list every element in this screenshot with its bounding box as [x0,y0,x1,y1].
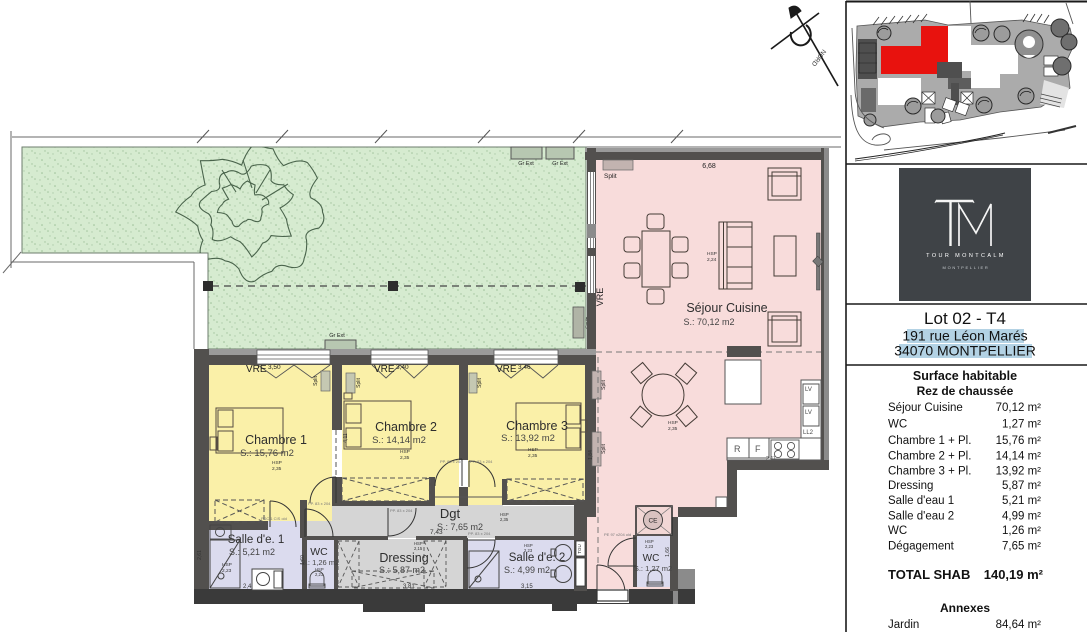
svg-text:LV: LV [805,387,812,393]
svg-text:S.: 70,12 m2: S.: 70,12 m2 [683,317,734,327]
svg-text:34070 MONTPELLIER: 34070 MONTPELLIER [894,343,1036,359]
svg-text:S.: 4,99 m2: S.: 4,99 m2 [504,565,550,575]
svg-text:7,43: 7,43 [430,529,443,536]
svg-text:S.: 1,26 m2: S.: 1,26 m2 [301,558,339,567]
svg-text:Surface habitable: Surface habitable [913,369,1017,383]
svg-text:2,35: 2,35 [272,466,282,472]
svg-text:Chambre 3 + Pl.: Chambre 3 + Pl. [888,466,971,478]
svg-text:Chambre 2 + Pl.: Chambre 2 + Pl. [888,451,971,463]
svg-text:191 rue Léon Marés: 191 rue Léon Marés [902,328,1027,344]
svg-text:70,12 m²: 70,12 m² [996,402,1042,414]
svg-text:Rez de chaussée: Rez de chaussée [917,384,1014,398]
svg-text:Split: Split [604,173,617,180]
svg-text:PP. 83 x 204: PP. 83 x 204 [440,459,463,464]
svg-text:3,50: 3,50 [268,364,281,371]
svg-text:LL2: LL2 [803,430,814,436]
svg-text:Dégagement: Dégagement [888,541,955,553]
svg-text:VRE: VRE [246,364,267,375]
svg-text:4,99 m²: 4,99 m² [1002,511,1041,523]
svg-text:2,23: 2,23 [222,568,232,574]
svg-text:HSP: HSP [400,449,410,455]
svg-text:Chambre 1: Chambre 1 [245,433,307,447]
svg-text:13,92 m²: 13,92 m² [996,466,1042,478]
svg-text:2,35: 2,35 [500,517,509,522]
svg-text:2,23: 2,23 [524,548,533,553]
svg-text:CE: CE [648,518,658,525]
svg-text:HSP: HSP [272,460,282,466]
svg-text:15,76 m²: 15,76 m² [996,435,1042,447]
svg-text:Annexes: Annexes [940,601,990,615]
svg-text:Séjour Cuisine: Séjour Cuisine [686,301,767,315]
svg-text:2,35: 2,35 [668,426,678,432]
svg-text:LV: LV [805,410,812,416]
svg-text:14,14 m²: 14,14 m² [996,451,1042,463]
svg-text:PP. 83 x 204: PP. 83 x 204 [390,508,413,513]
svg-text:Salle d'e. 2: Salle d'e. 2 [509,552,566,564]
svg-text:S.: 14,14 m2: S.: 14,14 m2 [372,435,426,446]
svg-text:Chambre 2: Chambre 2 [375,420,437,434]
svg-text:4,11: 4,11 [343,433,349,443]
svg-text:Chambre 3: Chambre 3 [506,419,568,433]
svg-text:S.: 15,76 m2: S.: 15,76 m2 [240,448,294,459]
svg-text:Gr Ext: Gr Ext [552,161,568,167]
svg-text:5,21 m²: 5,21 m² [1002,495,1041,507]
svg-text:PP. 83 x 204: PP. 83 x 204 [308,501,331,506]
svg-text:Split: Split [313,376,319,386]
svg-text:PP. 83 x 204: PP. 83 x 204 [470,459,493,464]
svg-text:2,41: 2,41 [766,456,776,462]
svg-text:WC: WC [888,419,907,431]
svg-text:Gr Ext: Gr Ext [518,161,534,167]
svg-text:1,66: 1,66 [665,547,671,557]
svg-text:TOUR MONTCALM: TOUR MONTCALM [926,253,1006,259]
svg-text:Salle d'eau 1: Salle d'eau 1 [888,495,954,507]
svg-text:Jardin: Jardin [888,619,919,631]
svg-text:1,60: 1,60 [300,555,306,565]
svg-text:Séjour Cuisine: Séjour Cuisine [888,402,963,414]
svg-text:WC: WC [643,553,660,564]
svg-text:2,35: 2,35 [400,455,410,461]
svg-text:VRE: VRE [595,288,605,307]
svg-text:S.: 5,21 m2: S.: 5,21 m2 [229,547,275,557]
svg-text:S.: 1,27 m2: S.: 1,27 m2 [634,564,672,573]
svg-text:2,15: 2,15 [414,546,423,551]
svg-text:WC: WC [888,525,907,537]
svg-text:Salle d'eau 2: Salle d'eau 2 [888,511,954,523]
svg-text:Split: Split [477,378,483,388]
svg-text:R: R [734,444,741,454]
svg-text:VRE: VRE [496,364,517,375]
svg-text:TOTAL SHAB: TOTAL SHAB [888,567,970,582]
svg-text:Dressing: Dressing [379,551,428,565]
svg-text:HSP: HSP [668,420,678,426]
svg-text:84,64 m²: 84,64 m² [996,619,1042,631]
svg-text:WC: WC [310,546,328,558]
svg-text:F: F [755,444,761,454]
svg-text:Lot 02 - T4: Lot 02 - T4 [924,309,1006,328]
svg-text:HSP: HSP [707,251,717,257]
svg-text:VRE: VRE [374,364,395,375]
svg-text:1,84: 1,84 [588,450,594,460]
svg-text:140,19 m²: 140,19 m² [984,567,1044,582]
svg-text:2,61: 2,61 [197,550,203,560]
svg-text:Split: Split [601,444,607,454]
svg-text:Dressing: Dressing [888,480,933,492]
svg-text:HSP: HSP [528,447,538,453]
svg-text:2,35: 2,35 [528,453,538,459]
svg-text:5,87 m²: 5,87 m² [1002,480,1041,492]
svg-text:2,24: 2,24 [707,257,717,263]
svg-text:3,15: 3,15 [521,584,533,590]
svg-text:MONTPELLIER: MONTPELLIER [943,265,990,270]
svg-text:S.: 5,87 m2: S.: 5,87 m2 [379,565,425,575]
svg-text:6,68: 6,68 [702,163,716,170]
svg-text:2,23: 2,23 [315,572,324,577]
svg-text:3,40: 3,40 [396,364,409,371]
svg-text:2,23: 2,23 [645,544,654,549]
svg-text:7,65 m²: 7,65 m² [1002,541,1041,553]
svg-text:3,81: 3,81 [403,584,415,590]
svg-text:Split: Split [356,378,362,388]
svg-text:Chambre 1 + Pl.: Chambre 1 + Pl. [888,435,971,447]
svg-text:3,46: 3,46 [518,364,531,371]
svg-text:PE 97 x204 old: PE 97 x204 old [604,532,631,537]
svg-text:1,26 m²: 1,26 m² [1002,525,1041,537]
svg-text:S.: 13,92 m2: S.: 13,92 m2 [501,433,555,444]
svg-text:PSC 1 CIS old: PSC 1 CIS old [261,516,287,521]
svg-text:Split: Split [601,380,607,390]
svg-text:1,27 m²: 1,27 m² [1002,419,1041,431]
svg-text:TGU: TGU [577,544,582,554]
svg-text:PP. 83 x 204: PP. 83 x 204 [468,531,491,536]
svg-text:Gr Ext: Gr Ext [329,333,345,339]
svg-text:Dgt: Dgt [440,506,461,521]
